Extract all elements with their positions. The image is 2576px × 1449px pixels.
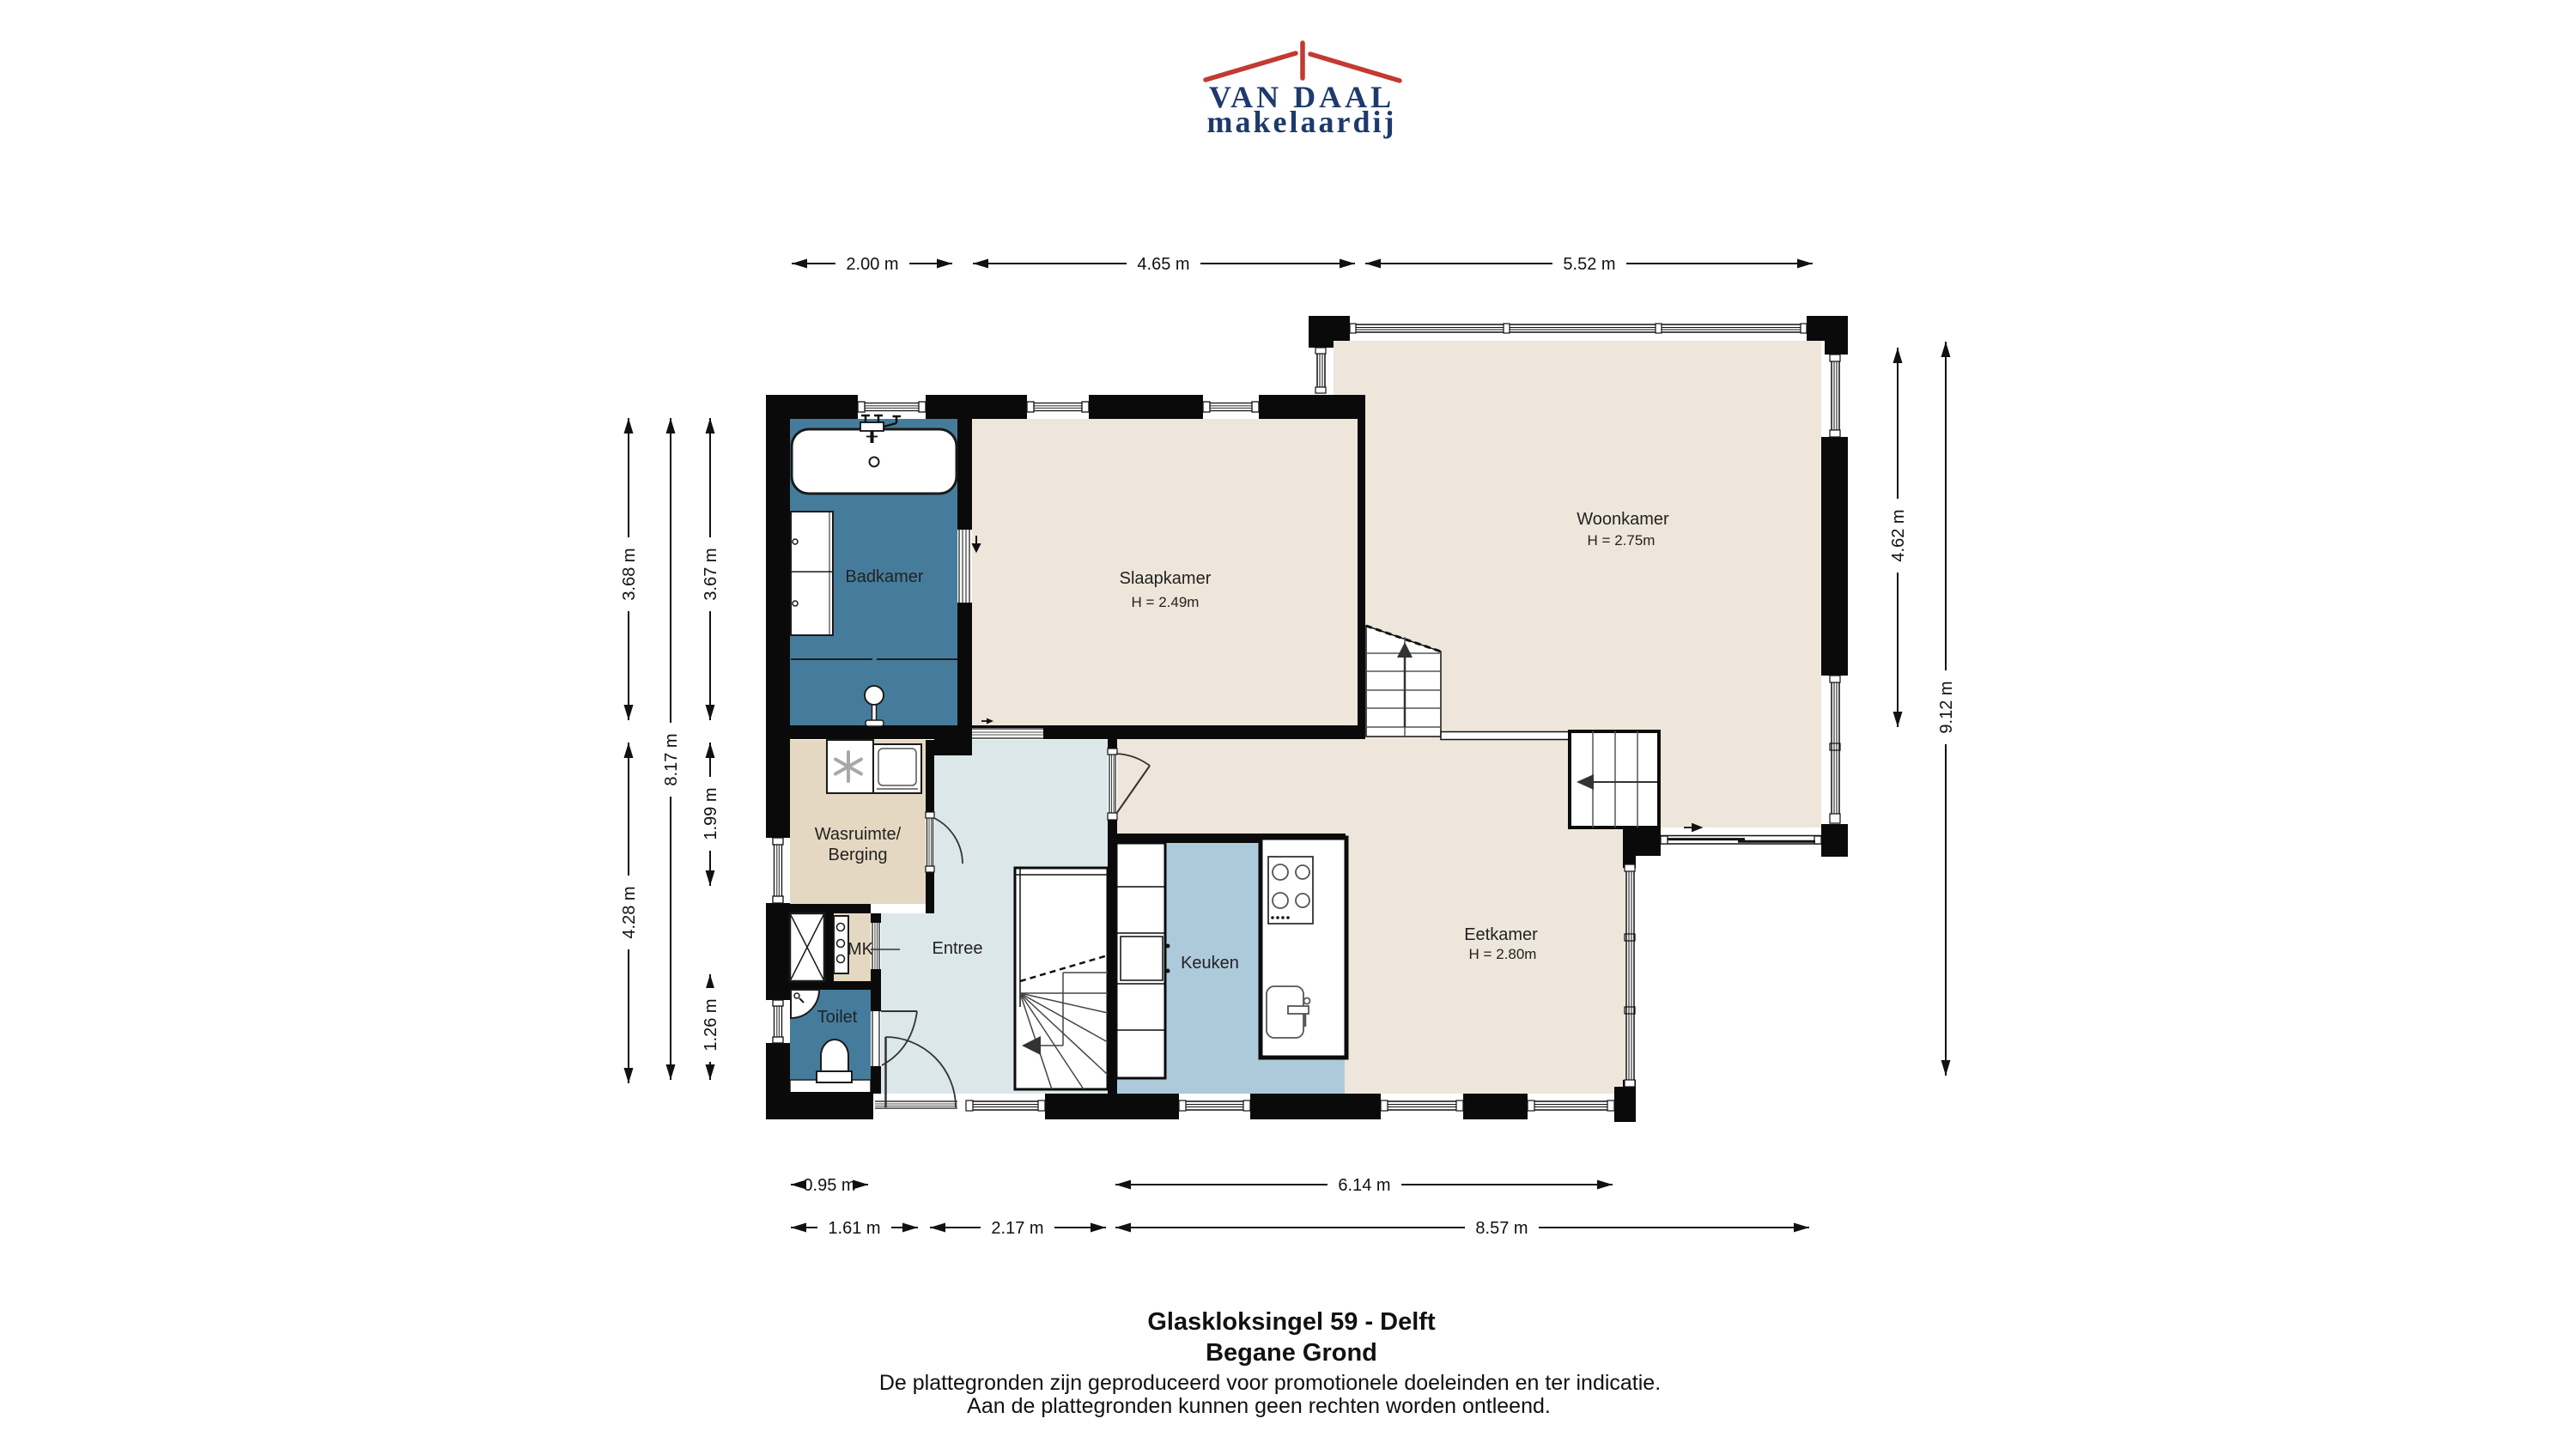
svg-text:H = 2.49m: H = 2.49m [1132, 594, 1200, 610]
svg-text:MK: MK [848, 940, 874, 959]
svg-text:8.57 m: 8.57 m [1475, 1219, 1528, 1238]
svg-text:4.62 m: 4.62 m [1889, 509, 1908, 561]
svg-text:Aan de plattegronden kunnen ge: Aan de plattegronden kunnen geen rechten… [967, 1394, 1551, 1418]
svg-text:De plattegronden zijn geproduc: De plattegronden zijn geproduceerd voor … [879, 1371, 1661, 1395]
svg-text:H = 2.75m: H = 2.75m [1588, 532, 1656, 549]
svg-text:3.68 m: 3.68 m [620, 548, 639, 600]
svg-text:Keuken: Keuken [1181, 954, 1239, 973]
svg-text:Wasruimte/: Wasruimte/ [815, 825, 902, 844]
svg-text:Woonkamer: Woonkamer [1577, 510, 1669, 529]
svg-text:2.17 m: 2.17 m [991, 1219, 1043, 1238]
svg-text:4.65 m: 4.65 m [1137, 255, 1189, 274]
svg-text:makelaardij: makelaardij [1207, 105, 1397, 139]
svg-text:3.67 m: 3.67 m [702, 548, 720, 600]
svg-text:Begane Grond: Begane Grond [1206, 1339, 1377, 1367]
svg-text:5.52 m: 5.52 m [1563, 255, 1615, 274]
svg-text:8.17 m: 8.17 m [662, 733, 681, 785]
svg-text:9.12 m: 9.12 m [1937, 681, 1956, 733]
svg-text:Eetkamer: Eetkamer [1464, 925, 1538, 944]
svg-text:2.00 m: 2.00 m [846, 255, 898, 274]
svg-text:H = 2.80m: H = 2.80m [1469, 946, 1537, 962]
svg-text:1.99 m: 1.99 m [702, 787, 720, 840]
svg-text:1.61 m: 1.61 m [828, 1219, 880, 1238]
svg-text:Badkamer: Badkamer [845, 567, 923, 586]
svg-text:Entree: Entree [933, 939, 983, 958]
svg-text:4.28 m: 4.28 m [620, 886, 639, 938]
svg-text:6.14 m: 6.14 m [1338, 1176, 1390, 1195]
svg-text:0.95 m: 0.95 m [803, 1176, 855, 1195]
svg-text:Glaskloksingel 59 - Delft: Glaskloksingel 59 - Delft [1147, 1308, 1436, 1336]
svg-text:Toilet: Toilet [817, 1008, 858, 1027]
svg-text:Slaapkamer: Slaapkamer [1120, 569, 1212, 588]
svg-text:Berging: Berging [829, 846, 888, 864]
svg-text:1.26 m: 1.26 m [702, 998, 720, 1051]
